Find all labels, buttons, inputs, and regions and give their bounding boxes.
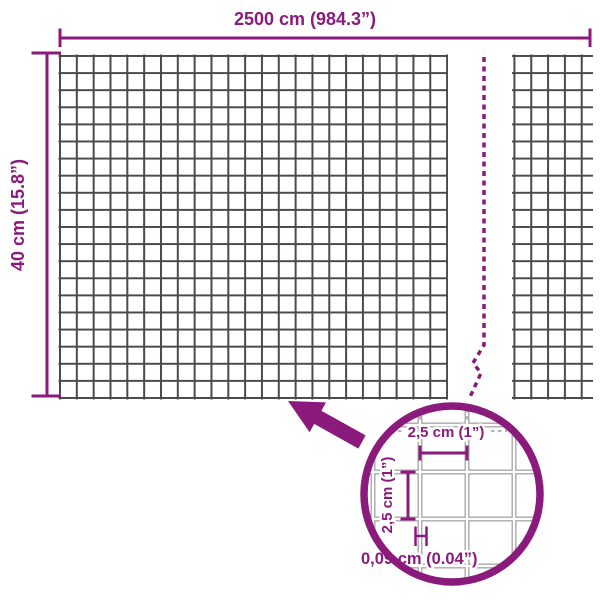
mesh-panel-left — [59, 55, 449, 400]
wire-thickness-label: 0,09 cm (0.04”) — [361, 550, 477, 568]
cell-width-label: 2,5 cm (1”) — [408, 424, 485, 441]
height-dimension-line — [32, 53, 62, 396]
width-dimension-line — [60, 29, 590, 48]
diagram-canvas: 2500 cm (984.3”) 40 cm (15.8”) 2,5 cm (1… — [0, 0, 600, 600]
detail-lens: 2,5 cm (1”) 2,5 cm (1”) 0,09 cm (0.04”) — [361, 406, 540, 582]
width-label: 2500 cm (984.3”) — [234, 9, 376, 29]
width-dimension: 2500 cm (984.3”) — [60, 9, 590, 47]
height-dimension: 40 cm (15.8”) — [8, 53, 61, 396]
panel-break-dashed-line — [470, 57, 484, 397]
height-label: 40 cm (15.8”) — [8, 159, 28, 271]
cell-height-label: 2,5 cm (1”) — [379, 457, 396, 534]
mesh-panel-right — [512, 55, 593, 400]
zoom-arrow-icon — [288, 401, 366, 449]
fence-mesh-diagram: 2500 cm (984.3”) 40 cm (15.8”) 2,5 cm (1… — [0, 0, 600, 600]
